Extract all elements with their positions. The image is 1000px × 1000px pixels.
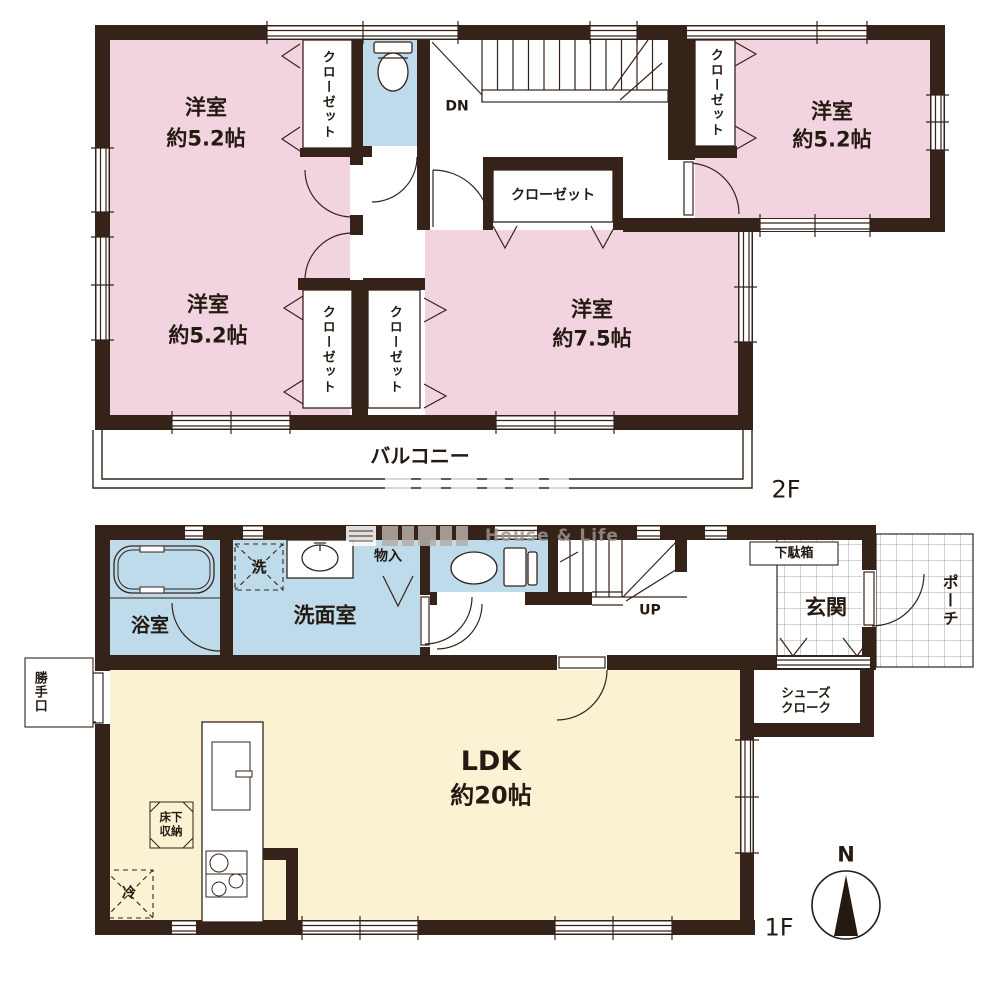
room-size-bedroom-ne: 約5.2帖 bbox=[792, 127, 871, 152]
balcony-label: バルコニー bbox=[370, 444, 470, 468]
ldk-label: LDK bbox=[461, 746, 522, 778]
kitchen-counter-icon bbox=[202, 722, 263, 922]
f1-stairs bbox=[558, 538, 687, 601]
room-label-bedroom-nw: 洋室 bbox=[185, 95, 227, 120]
washroom-label: 洗面室 bbox=[294, 603, 357, 628]
fridge-label: 冷 bbox=[122, 886, 136, 903]
laundry-label: 洗 bbox=[251, 558, 266, 576]
stove-icon bbox=[206, 851, 247, 897]
watermark-text: House & Life bbox=[485, 526, 619, 546]
compass-north-label: N bbox=[837, 842, 855, 867]
shoe-cloak-label: シューズ クローク bbox=[781, 685, 831, 715]
room-label-bedroom-ne: 洋室 bbox=[811, 99, 853, 124]
entrance-label: 玄関 bbox=[805, 595, 847, 620]
compass-icon bbox=[812, 871, 880, 939]
underfloor-line1: 床下 bbox=[160, 811, 183, 825]
shoe-cloak-line1: シューズ bbox=[781, 685, 831, 700]
stairs-down-label: DN bbox=[445, 99, 468, 116]
room-size-bedroom-sw: 約5.2帖 bbox=[168, 323, 247, 348]
back-door-label: 勝手口 bbox=[31, 671, 47, 713]
stairs-up-label: UP bbox=[639, 603, 661, 620]
f2-stairs bbox=[432, 40, 668, 102]
underfloor-line2: 収納 bbox=[160, 825, 183, 839]
room-size-bedroom-se: 約7.5帖 bbox=[552, 326, 631, 351]
room-size-bedroom-nw: 約5.2帖 bbox=[166, 126, 245, 151]
sink-icon bbox=[287, 540, 353, 578]
porch-label: ポーチ bbox=[939, 574, 958, 628]
closet-label-center: クローゼット bbox=[511, 188, 595, 205]
shoe-cloak-line2: クローク bbox=[781, 700, 831, 715]
storage-label: 物入 bbox=[374, 549, 402, 566]
room-label-bedroom-se: 洋室 bbox=[571, 297, 613, 322]
closet-label-nw: クローゼット bbox=[319, 50, 335, 140]
underfloor-label: 床下 収納 bbox=[160, 811, 183, 839]
floor-plan: 洋室 約5.2帖 洋室 約5.2帖 洋室 約5.2帖 洋室 約7.5帖 クローゼ… bbox=[0, 0, 1000, 1000]
room-label-bedroom-sw: 洋室 bbox=[187, 292, 229, 317]
bath-label: 浴室 bbox=[131, 615, 169, 638]
ldk-size-label: 約20帖 bbox=[450, 782, 531, 811]
closet-label-s2: クローゼット bbox=[386, 305, 402, 395]
shoe-box-label: 下駄箱 bbox=[774, 546, 813, 562]
closet-label-s1: クローゼット bbox=[319, 305, 335, 395]
floor-label-1f: 1F bbox=[764, 914, 793, 943]
floor-label-2f: 2F bbox=[771, 476, 800, 505]
closet-label-ne: クローゼット bbox=[707, 48, 723, 138]
